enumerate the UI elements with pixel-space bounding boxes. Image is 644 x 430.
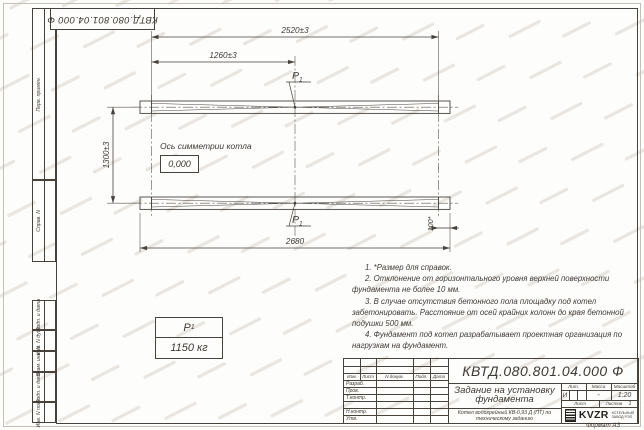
tb-lit-label: Лит. (561, 383, 586, 390)
load-point-bottom: P1 (286, 202, 311, 228)
load-point-letter: P (292, 70, 299, 82)
tb-row-prov: Пров. (344, 387, 378, 394)
kvzr-logo-mark-icon (565, 409, 576, 422)
load-point-top: P1 (286, 70, 311, 109)
tb-header-data: Дата (430, 373, 448, 380)
level-mark-value: 0,000 (168, 159, 191, 169)
tb-mass-label: Масса (586, 383, 611, 390)
tb-row-razrab: Разраб. (344, 380, 378, 387)
load-name-sub: 1 (191, 324, 195, 331)
tb-header-ndokum: N докум. (376, 373, 413, 380)
title-block: Изм. Лист N докум. Подп. Дата Разраб. Пр… (343, 358, 639, 424)
tb-sheets-value: 1 (628, 401, 631, 407)
load-point-sub: 1 (299, 221, 303, 228)
tb-sheets-label: Листов (606, 401, 623, 406)
note-3: 3. В случае отсутствия бетонного пола пл… (352, 296, 638, 330)
tb-mass-value: - (586, 390, 611, 400)
format-note: Формат А3 (560, 422, 644, 429)
tb-lit-value: И (561, 390, 569, 400)
extension-lines (107, 31, 450, 252)
dim-100-label: 100* (426, 216, 435, 231)
symmetry-axis-label: Ось симметрии котла (160, 141, 252, 151)
note-4: 4. Фундамент под котел разрабатывает про… (352, 329, 638, 351)
tb-doc-number: КВТД.080.801.04.000 Ф (448, 359, 638, 383)
tb-row-nkontr: Н.контр. (344, 408, 378, 415)
tb-scale-label: Масштаб (611, 383, 638, 390)
tb-row-utv: Утв. (344, 415, 378, 422)
load-point-letter: P (292, 214, 299, 226)
load-name: P (183, 322, 190, 334)
kvzr-caption-line2: ЗАВОД РЭП (612, 415, 635, 419)
tb-header-izm: Изм. (344, 373, 360, 380)
tb-row-blank (344, 401, 378, 408)
tb-title: Задание на установку фундамента (451, 383, 558, 408)
load-value-table: P1 1150 кг (155, 317, 223, 359)
load-value-cell: 1150 кг (156, 338, 222, 358)
note-1: 1. *Размер для справок. (352, 262, 638, 273)
tb-logo-cell: KVZR КОТЕЛЬНЫЙ ЗАВОД РЭП (561, 407, 638, 423)
tb-row-tkontr: Т.контр. (344, 394, 378, 401)
load-name-cell: P1 (156, 318, 222, 338)
svg-text:P1: P1 (292, 70, 303, 84)
tb-header-podp: Подп. (413, 373, 430, 380)
tb-header-list: Лист (360, 373, 376, 380)
tb-sheets-cell: Листов 1 (599, 400, 638, 407)
dim-1300-label: 1300±3 (102, 141, 111, 168)
dim-2680-label: 2680 (285, 237, 305, 246)
dim-2520-label: 2520±3 (280, 26, 309, 35)
notes-block: 1. *Размер для справок. 2. Отклонение от… (352, 262, 638, 352)
level-mark-box: 0,000 (160, 155, 199, 173)
drawing-sheet: Перв. примен. Справ. N Подп. и дата Инв.… (0, 0, 644, 430)
kvzr-logo-text: KVZR (579, 409, 609, 421)
tb-subtitle: Котел водогрейный КВ-0,93 Д (ПТ) по техн… (450, 408, 559, 423)
tb-sheet-label: Лист (561, 400, 599, 407)
note-2: 2. Отклонение от горизонтального уровня … (352, 273, 638, 295)
load-point-sub: 1 (299, 77, 303, 84)
svg-text:P1: P1 (292, 214, 303, 228)
dim-1260-label: 1260±3 (209, 51, 237, 60)
tb-scale-value: 1:20 (611, 390, 638, 400)
